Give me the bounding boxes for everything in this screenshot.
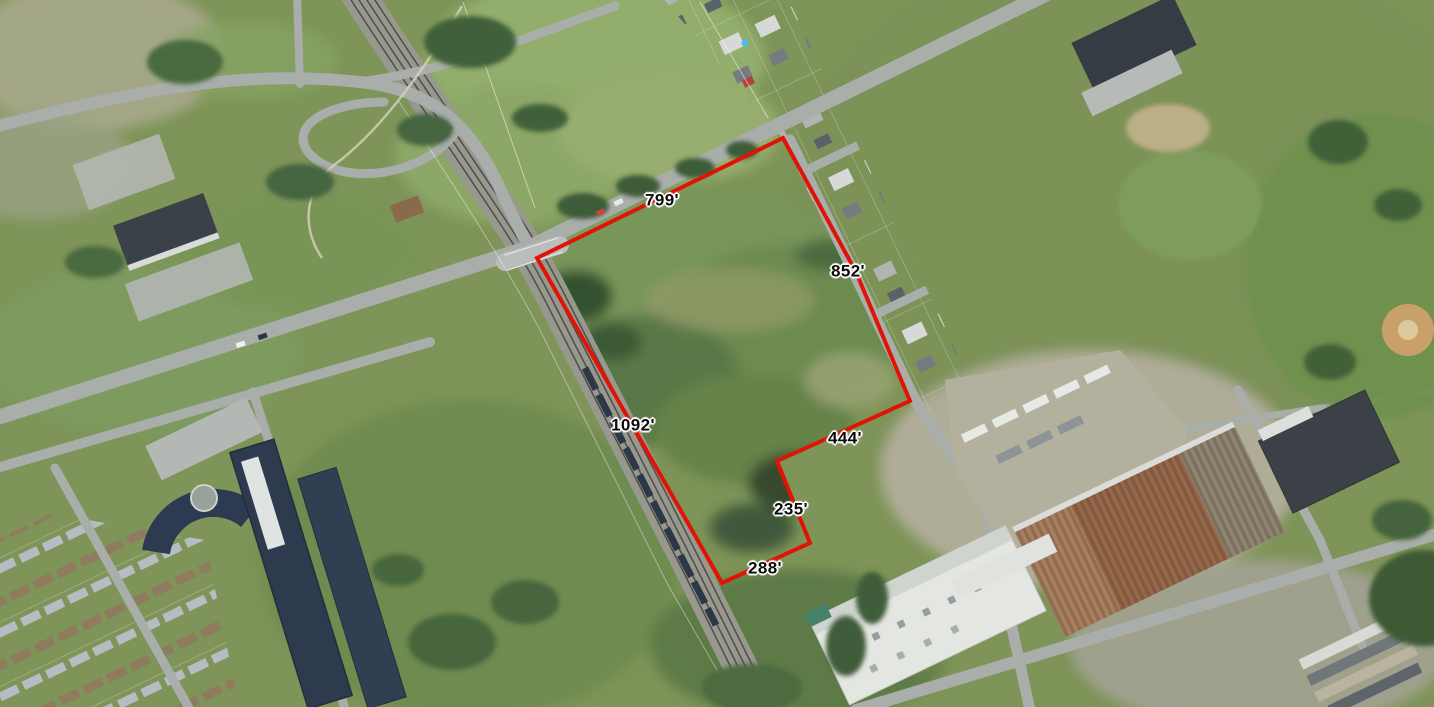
swimming-pool xyxy=(742,40,749,47)
aerial-map[interactable]: 799'852'1092'444'235'288' xyxy=(0,0,1434,707)
satellite-imagery xyxy=(0,0,1434,707)
